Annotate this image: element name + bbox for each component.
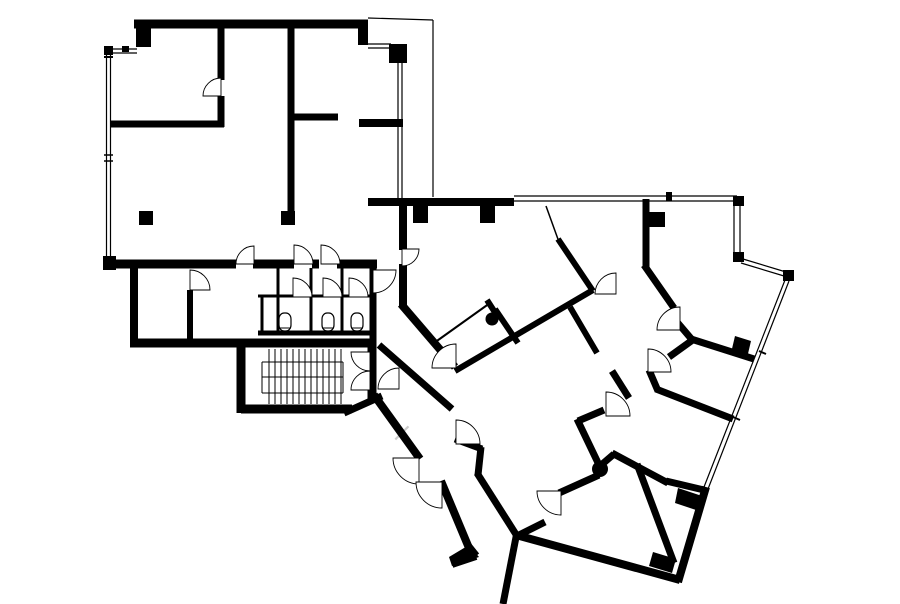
pillar: [733, 196, 744, 206]
pillar: [103, 256, 116, 270]
pillar: [122, 46, 129, 52]
wall-segment: [478, 447, 481, 475]
pillar: [648, 212, 665, 227]
pillar: [783, 270, 794, 281]
floor-plan-drawing: ×: [0, 0, 900, 604]
pillar: [358, 28, 368, 45]
pillar: [281, 211, 295, 225]
column-dot: [486, 313, 499, 326]
pillar: [139, 211, 153, 225]
floor-plan-page: ×: [0, 0, 900, 604]
column-dot: [592, 461, 608, 477]
pillar: [480, 206, 495, 223]
pillar: [104, 46, 113, 55]
pillar: [666, 192, 672, 201]
pillar: [136, 28, 151, 47]
pillar: [733, 252, 744, 262]
pillar: [389, 44, 407, 63]
pillar: [413, 206, 428, 223]
